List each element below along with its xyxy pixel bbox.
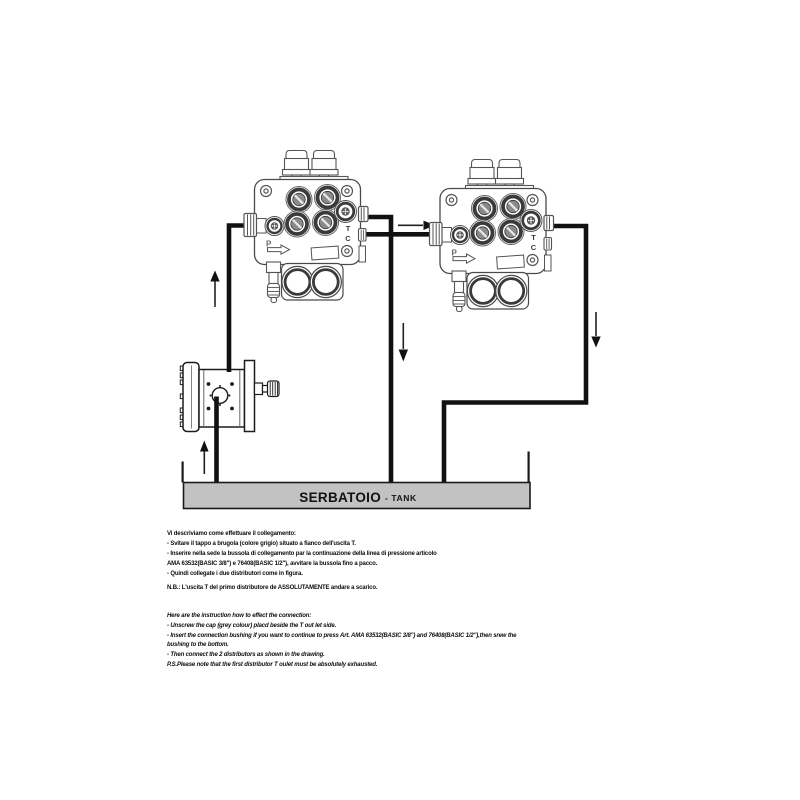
en-line-2: - Unscrew the cap (grey colour) placd be…: [167, 622, 507, 632]
instructions-english: Here are the instruction how to effect t…: [167, 612, 507, 671]
it-line-5: - Quindi collegate i due distributori co…: [167, 569, 507, 579]
tank: SERBATOIO - TANK: [183, 452, 530, 509]
flow-arrow-down-return1-icon: [399, 323, 408, 362]
distributor-valve-1: [244, 151, 368, 303]
it-line-1: Vi descriviamo come effettuare il colleg…: [167, 529, 507, 539]
en-line-ps: P.S.Please note that the first distribut…: [167, 661, 507, 671]
pump-end-plate: [245, 361, 255, 432]
hydraulic-connection-diagram-page: P T C: [0, 0, 800, 800]
flow-arrow-down-return2-icon: [591, 312, 600, 348]
instructions-italian: Vi descriviamo come effettuare il colleg…: [167, 529, 507, 593]
en-line-3: - Insert the connection bushing if you w…: [167, 632, 507, 642]
en-line-4: bushing to the bottom.: [167, 641, 507, 651]
en-line-1: Here are the instruction how to effect t…: [167, 612, 507, 622]
pump-flange: [183, 363, 199, 432]
it-line-3: - Inserire nella sede la bussola di coll…: [167, 549, 507, 559]
distributor-valve-2: [430, 160, 554, 312]
it-line-nb: N.B.: L'uscita T del primo distributore …: [167, 583, 507, 593]
flow-arrow-up-suction-icon: [200, 441, 209, 475]
flow-arrow-up-pressure-icon: [210, 271, 219, 308]
it-line-4: AMA 63532(BASIC 3/8") e 76408(BASIC 1/2"…: [167, 559, 507, 569]
pipe-pump-to-valve1: [229, 226, 249, 373]
tank-label-primary: SERBATOIO: [299, 490, 381, 505]
tank-label-secondary: - TANK: [385, 493, 417, 503]
hydraulic-diagram: P T C: [0, 0, 800, 800]
en-line-5: - Then connect the 2 distributors as sho…: [167, 651, 507, 661]
it-line-2: - Svitare il tappo a brugola (colore gri…: [167, 539, 507, 549]
pump-shaft: [255, 381, 280, 397]
